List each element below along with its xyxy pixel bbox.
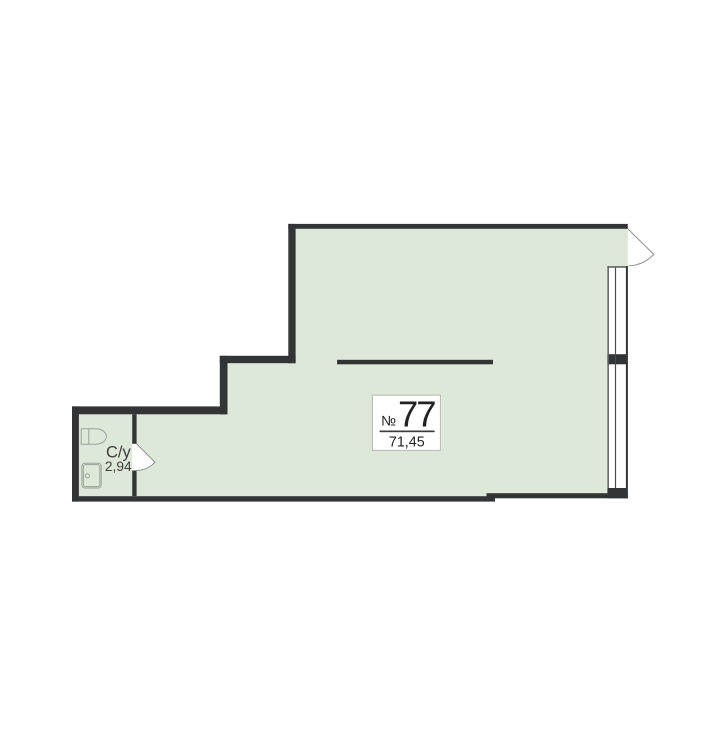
svg-text:77: 77 — [398, 394, 435, 435]
svg-text:71,45: 71,45 — [389, 434, 425, 450]
svg-text:№: № — [381, 413, 396, 429]
svg-text:2,94: 2,94 — [105, 459, 132, 474]
